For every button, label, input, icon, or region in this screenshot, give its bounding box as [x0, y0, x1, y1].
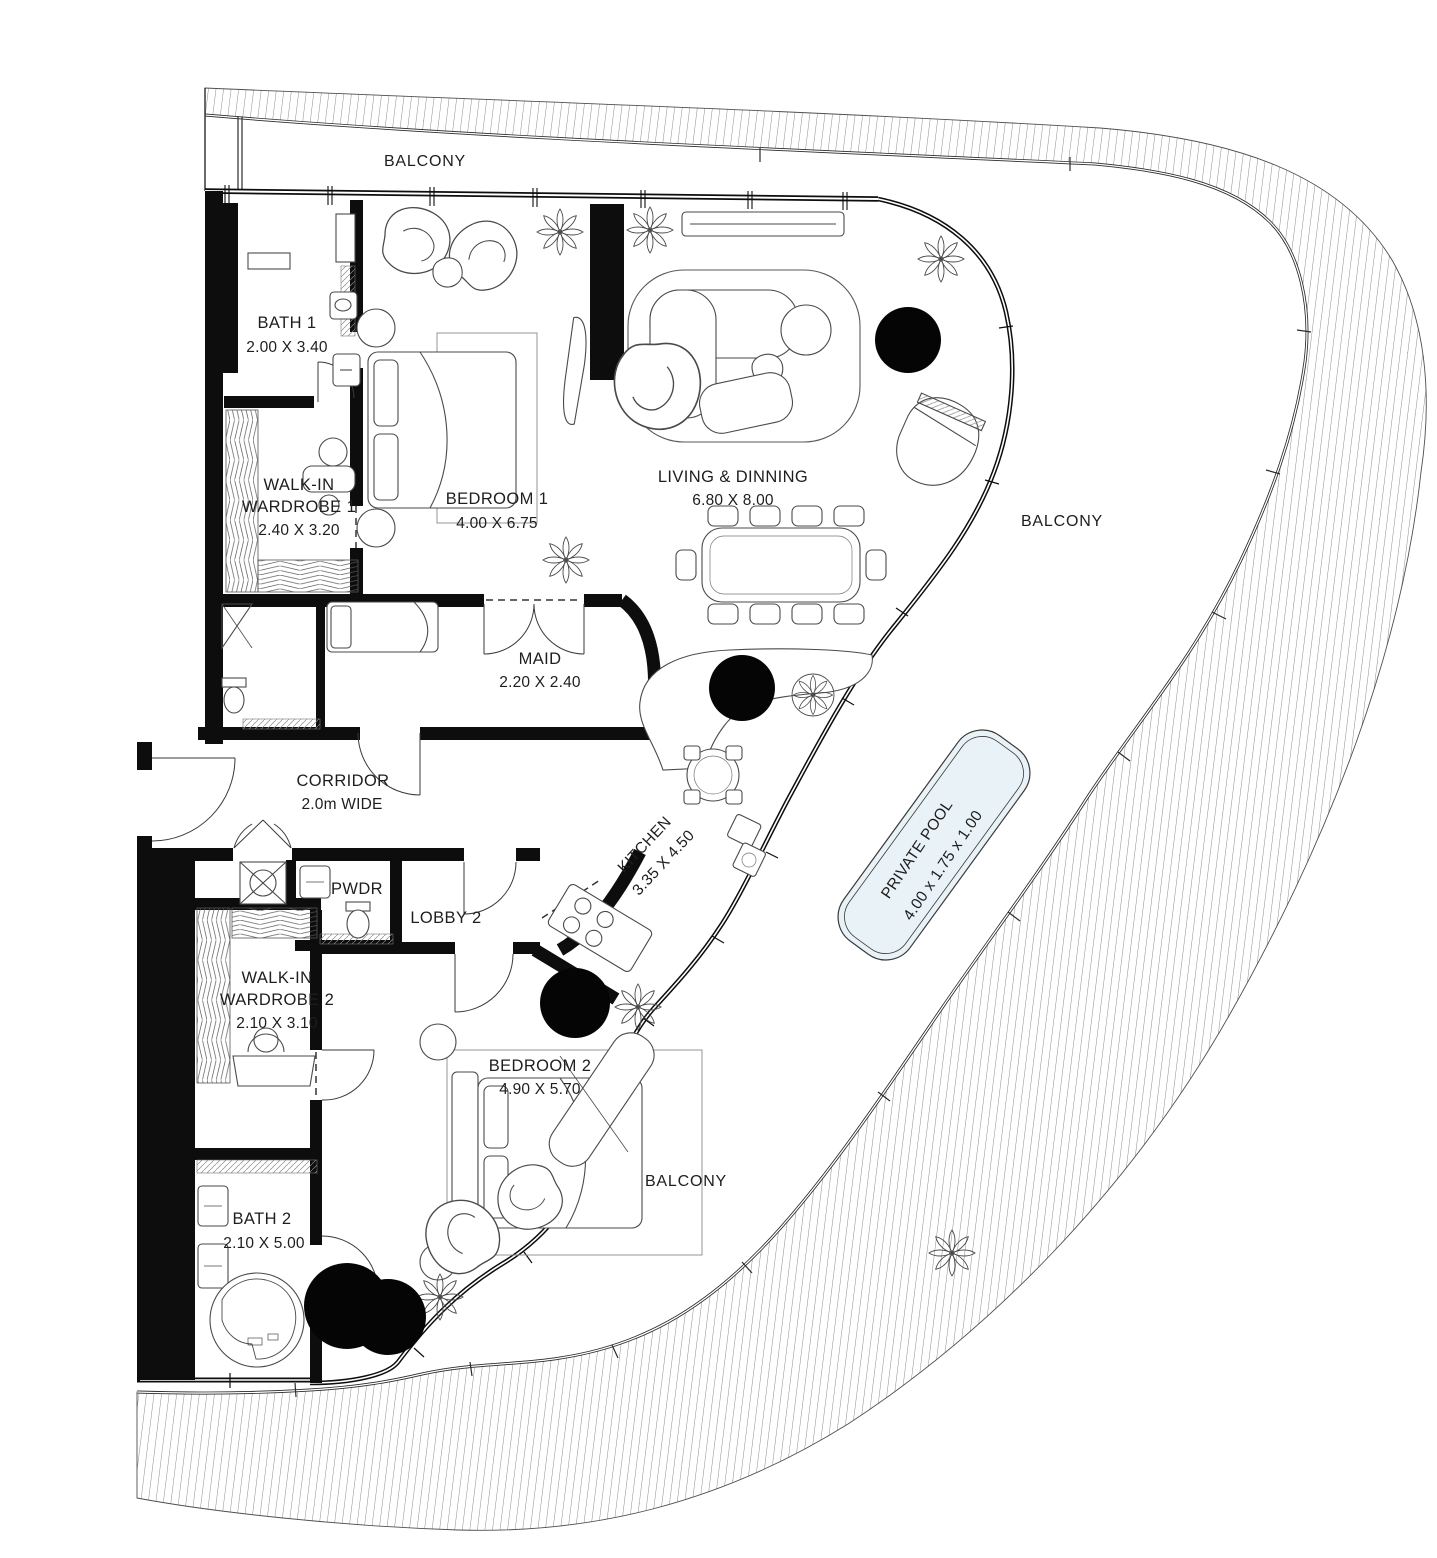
- bedroom1-dims: 4.00 X 6.75: [456, 515, 538, 532]
- lobby2-label: LOBBY 2: [410, 909, 481, 927]
- wardrobe2-door: [322, 1050, 374, 1100]
- dining-set: [676, 506, 886, 624]
- bedroom2-dims: 4.90 X 5.70: [499, 1081, 581, 1098]
- balcony-bottom-label: BALCONY: [645, 1173, 727, 1190]
- bedroom1-label: BEDROOM 1: [446, 490, 549, 508]
- corridor-label: CORRIDOR: [296, 772, 389, 790]
- bath1-label: BATH 1: [258, 314, 317, 332]
- floor-plan-drawing: BALCONY BALCONY BALCONY BATH 1 2.00 X 3.…: [0, 0, 1437, 1558]
- pwdr-door: [464, 862, 516, 914]
- balcony-right-label: BALCONY: [1021, 513, 1103, 530]
- wardrobe2-dressing-table: [233, 1028, 315, 1086]
- bath1-dims: 2.00 X 3.40: [246, 339, 328, 356]
- balcony-top-label: BALCONY: [384, 153, 466, 170]
- bath1-fixtures: [248, 214, 360, 386]
- bedroom2-label: BEDROOM 2: [489, 1057, 592, 1075]
- pwdr-label: PWDR: [331, 880, 383, 898]
- wardrobe2-label-2: WARDROBE 2: [220, 991, 334, 1009]
- bedroom1-double-door: [484, 604, 584, 654]
- wardrobe1-dims: 2.40 X 3.20: [258, 522, 340, 539]
- wardrobe1-label-2: WARDROBE 1: [242, 498, 356, 516]
- maid-furniture: [222, 602, 438, 713]
- entry-door: [152, 758, 235, 841]
- bath2-label: BATH 2: [233, 1210, 292, 1228]
- utility-double-door: [234, 820, 291, 848]
- living-dims: 6.80 X 8.00: [692, 492, 774, 509]
- floor-plan-page: BALCONY BALCONY BALCONY BATH 1 2.00 X 3.…: [0, 0, 1437, 1558]
- column-bath2-b: [350, 1279, 426, 1355]
- maid-dims: 2.20 X 2.40: [499, 674, 581, 691]
- water-heater-unit: [240, 862, 286, 904]
- wardrobe2-label-1: WALK-IN: [242, 969, 313, 987]
- wardrobe2-dims: 2.10 X 3.10: [236, 1015, 318, 1032]
- column-living: [875, 307, 941, 373]
- wardrobe1-label-1: WALK-IN: [264, 476, 335, 494]
- maid-label: MAID: [519, 650, 562, 668]
- bath2-dims: 2.10 X 5.00: [223, 1235, 305, 1252]
- corridor-dims: 2.0m WIDE: [301, 796, 382, 813]
- grand-piano: [885, 387, 991, 499]
- column-bedroom2: [540, 968, 610, 1038]
- bedroom2-door: [455, 954, 513, 1012]
- living-furniture: [610, 212, 860, 442]
- column-kitchen: [709, 655, 775, 721]
- living-label: LIVING & DINNING: [658, 468, 808, 486]
